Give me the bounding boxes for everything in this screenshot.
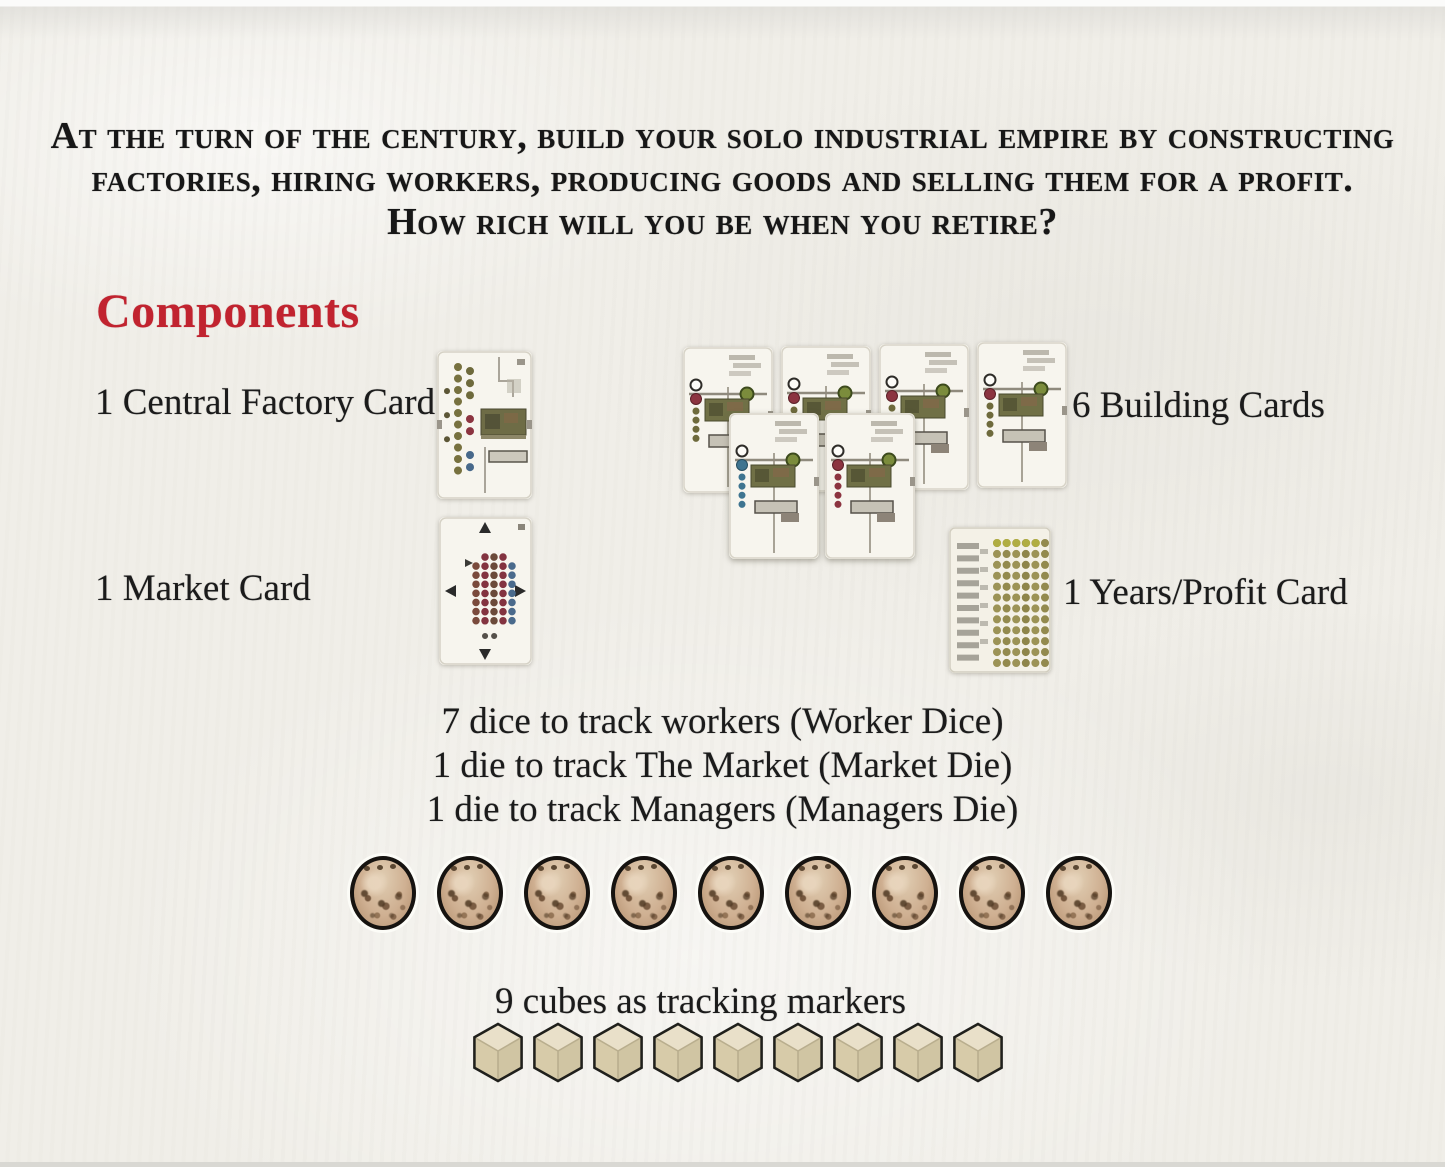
cubes-label: 9 cubes as tracking markers — [0, 980, 1445, 1023]
label-years-profit-card: 1 Years/Profit Card — [1063, 571, 1348, 614]
rulebook-components-page: At the turn of the century, build your s… — [0, 0, 1445, 1167]
tracking-cube-image — [589, 1021, 646, 1084]
dice-line-workers: 7 dice to track workers (Worker Dice) — [0, 700, 1445, 744]
cubes-row — [469, 1021, 1006, 1084]
worker-die-image — [872, 856, 938, 930]
dice-description: 7 dice to track workers (Worker Dice) 1 … — [0, 700, 1445, 832]
intro-line-3: How rich will you be when you retire? — [0, 201, 1445, 244]
tracking-cube-image — [469, 1021, 526, 1084]
worker-die-image — [611, 856, 677, 930]
label-building-cards: 6 Building Cards — [1072, 384, 1325, 427]
worker-die-image — [524, 856, 590, 930]
dice-line-market: 1 die to track The Market (Market Die) — [0, 744, 1445, 788]
tracking-cube-image — [829, 1021, 886, 1084]
dice-line-managers: 1 die to track Managers (Managers Die) — [0, 788, 1445, 832]
building-card-image — [977, 342, 1067, 488]
worker-die-image — [350, 856, 416, 930]
building-card-image — [729, 413, 819, 559]
tracking-cube-image — [769, 1021, 826, 1084]
building-card-art — [729, 413, 819, 559]
tracking-cube-image — [649, 1021, 706, 1084]
central-factory-card-image — [437, 351, 532, 499]
components-heading: Components — [96, 284, 360, 339]
tracking-cube-image — [949, 1021, 1006, 1084]
worker-die-image — [1046, 856, 1112, 930]
intro-line-2: factories, hiring workers, producing goo… — [0, 158, 1445, 201]
dice-row — [350, 856, 1112, 930]
central-factory-card-art — [437, 351, 532, 499]
building-card-art — [977, 342, 1067, 488]
building-card-art — [825, 413, 915, 559]
intro-text: At the turn of the century, build your s… — [0, 115, 1445, 244]
label-market-card: 1 Market Card — [95, 567, 311, 610]
worker-die-image — [437, 856, 503, 930]
worker-die-image — [698, 856, 764, 930]
intro-line-1: At the turn of the century, build your s… — [0, 115, 1445, 158]
market-card-art — [439, 517, 532, 665]
worker-die-image — [959, 856, 1025, 930]
market-card-image — [439, 517, 532, 665]
years-profit-card-image — [949, 527, 1051, 673]
worker-die-image — [785, 856, 851, 930]
years-profit-card-art — [949, 527, 1051, 673]
tracking-cube-image — [529, 1021, 586, 1084]
tracking-cube-image — [709, 1021, 766, 1084]
tracking-cube-image — [889, 1021, 946, 1084]
building-cards-group — [680, 342, 1072, 558]
label-central-factory-card: 1 Central Factory Card — [95, 381, 435, 424]
building-card-image — [825, 413, 915, 559]
